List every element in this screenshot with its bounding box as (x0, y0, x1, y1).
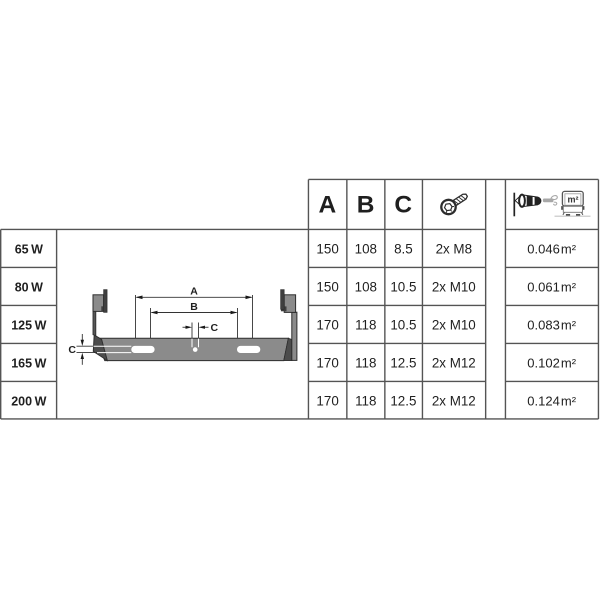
svg-text:170: 170 (316, 393, 338, 408)
svg-text:118: 118 (355, 355, 376, 370)
svg-text:65 W: 65 W (15, 243, 43, 257)
svg-text:8.5: 8.5 (394, 242, 413, 257)
svg-text:10.5: 10.5 (390, 317, 416, 332)
svg-text:C: C (68, 344, 76, 356)
svg-text:125 W: 125 W (11, 319, 46, 333)
svg-text:A: A (319, 192, 337, 219)
svg-text:C: C (211, 322, 219, 334)
svg-text:108: 108 (355, 242, 377, 257)
svg-text:150: 150 (316, 280, 338, 295)
svg-text:2x M12: 2x M12 (432, 393, 476, 408)
svg-text:118: 118 (355, 317, 376, 332)
svg-text:0.083 m²: 0.083 m² (527, 317, 576, 332)
svg-text:200 W: 200 W (11, 394, 46, 408)
svg-text:0.046 m²: 0.046 m² (527, 242, 576, 257)
svg-text:150: 150 (316, 242, 338, 257)
svg-text:0.061 m²: 0.061 m² (527, 280, 576, 295)
svg-text:0.124 m²: 0.124 m² (527, 393, 576, 408)
svg-text:B: B (357, 192, 375, 219)
svg-text:12.5: 12.5 (390, 393, 416, 408)
svg-text:0.102 m²: 0.102 m² (527, 355, 576, 370)
svg-text:C: C (394, 192, 412, 219)
svg-text:10.5: 10.5 (390, 280, 416, 295)
svg-text:m²: m² (568, 195, 579, 205)
svg-text:170: 170 (316, 317, 338, 332)
svg-text:118: 118 (355, 393, 376, 408)
svg-text:12.5: 12.5 (390, 355, 416, 370)
svg-text:2x M10: 2x M10 (432, 280, 476, 295)
svg-text:108: 108 (355, 280, 377, 295)
svg-text:A: A (190, 286, 198, 298)
svg-text:2x M12: 2x M12 (432, 355, 476, 370)
svg-text:2x M10: 2x M10 (432, 317, 476, 332)
svg-text:B: B (190, 301, 198, 313)
svg-text:165 W: 165 W (11, 357, 46, 371)
svg-text:80 W: 80 W (15, 281, 43, 295)
svg-text:2x M8: 2x M8 (436, 242, 472, 257)
svg-text:170: 170 (316, 355, 338, 370)
